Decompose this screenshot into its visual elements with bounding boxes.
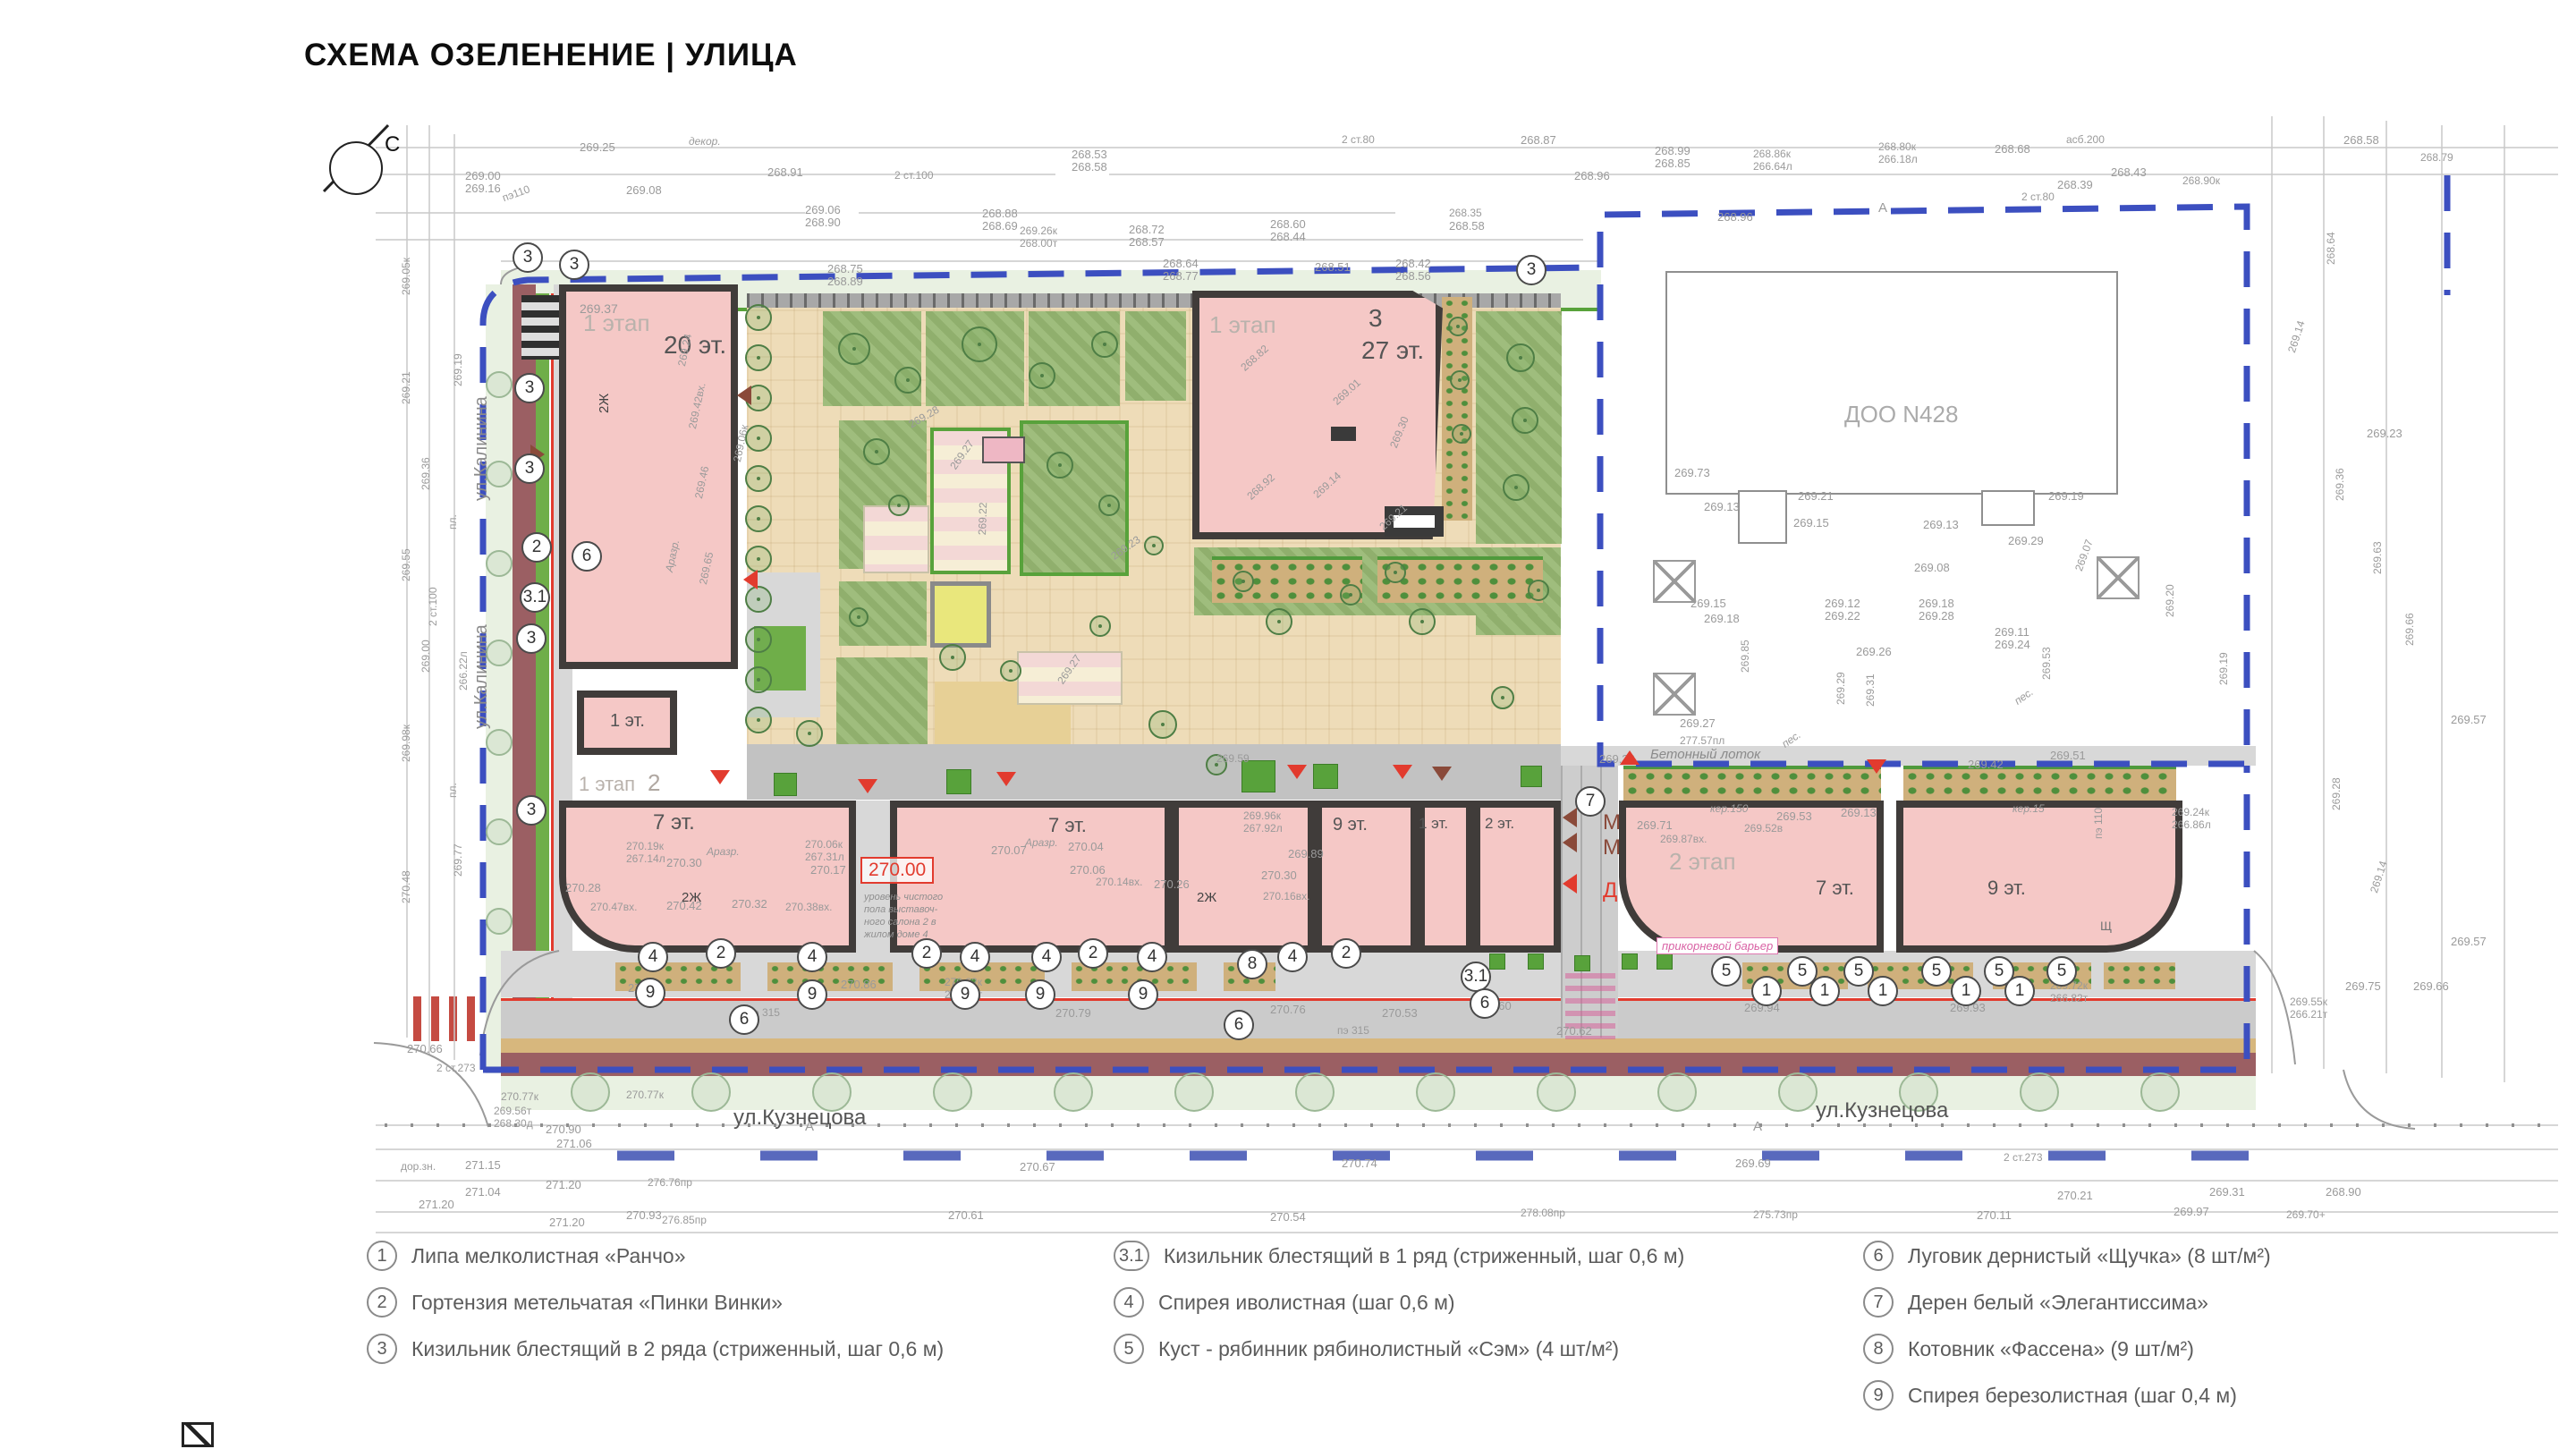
plan-text: 269.97 xyxy=(2173,1206,2209,1217)
plan-text: 269.66 xyxy=(2404,613,2415,646)
plan-text: 269.28 xyxy=(2331,777,2342,810)
plan-text: 268.60 xyxy=(1270,218,1306,230)
plan-text: Щ xyxy=(2100,919,2112,932)
plan-text: 269.51 xyxy=(2050,750,2086,761)
plan-text: 271.20 xyxy=(419,1199,454,1210)
plan-text: 270.30 xyxy=(1261,869,1297,881)
plan-text: 269.08 xyxy=(1914,562,1950,573)
plan-text: 268.75 xyxy=(827,263,863,275)
plan-text: 269.53 xyxy=(1776,810,1812,822)
plan-text: 268.44 xyxy=(1270,231,1306,242)
plan-text: 2Ж xyxy=(1197,891,1216,904)
plan-text: 269.37 xyxy=(580,302,618,315)
plan-text: 269.00 xyxy=(465,170,501,182)
plan-text: 268.43 xyxy=(2111,166,2147,178)
site-plan: 1 этап20 эт.2Ж1 эт.1 этап27 эт.2Ж7 эт.2Ж… xyxy=(0,0,2576,1449)
legend-item: 8Котовник «Фассена» (9 шт/м²) xyxy=(1863,1333,2194,1365)
entrance-arrow-icon xyxy=(1393,765,1412,779)
plan-text: Д xyxy=(1603,880,1617,902)
legend-item: 1Липа мелколистная «Ранчо» xyxy=(367,1240,686,1272)
plant-marker-4: 4 xyxy=(1277,942,1308,972)
entrance-arrow-icon xyxy=(1563,874,1577,894)
entrance-arrow-icon xyxy=(737,386,751,405)
plan-text: 27 эт. xyxy=(1361,338,1424,363)
plant-marker-1: 1 xyxy=(1951,976,1981,1006)
plan-text: 2 этап xyxy=(1669,850,1736,873)
tree-icon xyxy=(1409,608,1436,635)
entrance-arrow-icon xyxy=(710,770,730,784)
plan-text: 270.48 xyxy=(401,870,411,903)
plan-text: кер.150 xyxy=(1710,803,1748,814)
plan-text: 266.86л xyxy=(2172,819,2211,830)
plan-text: 271.20 xyxy=(549,1216,585,1228)
tree-icon xyxy=(1000,660,1021,682)
plant-marker-3: 3 xyxy=(513,242,543,273)
tree-icon xyxy=(2020,1072,2059,1112)
plan-text: 268.35 xyxy=(1449,208,1482,218)
plant-marker-4: 4 xyxy=(1031,942,1062,972)
legend-item-number: 9 xyxy=(1863,1380,1894,1411)
tree-icon xyxy=(888,495,910,516)
tree-icon xyxy=(1144,536,1164,555)
tree-icon xyxy=(486,818,513,845)
plan-text: 2 ст.273 xyxy=(436,1063,476,1073)
plan-text: 268.96 xyxy=(1574,170,1610,182)
tree-icon xyxy=(1512,407,1538,434)
plan-text: Бетонный лоток xyxy=(1650,748,1760,761)
plan-text: Аразр. xyxy=(1025,837,1058,848)
plan-text: 268.99 xyxy=(1655,145,1690,157)
plan-text: 270.53 xyxy=(1382,1007,1418,1019)
tree-icon xyxy=(962,326,997,362)
plan-text: 270.74 xyxy=(1342,1157,1377,1169)
plan-text: 270.93 xyxy=(626,1209,662,1221)
plan-text: 269.23 xyxy=(2367,428,2402,439)
plan-text: 270.67 xyxy=(1020,1161,1055,1173)
plan-text: 268.58 xyxy=(1072,161,1107,173)
plan-text: кер.15 xyxy=(2012,803,2045,814)
plan-text: 268.51 xyxy=(1315,261,1351,273)
plan-text: 276.76пр xyxy=(648,1177,692,1188)
root-barrier-note: прикорневой барьер xyxy=(1657,937,1778,954)
plant-marker-9: 9 xyxy=(1128,979,1158,1010)
plan-text: 20 эт. xyxy=(664,333,726,358)
plan-text: 270.17 xyxy=(810,864,846,876)
plan-text: 269.52в xyxy=(1744,823,1783,834)
plan-text: 270.42 xyxy=(666,900,702,911)
plant-marker-4: 4 xyxy=(797,942,827,972)
plan-text: М xyxy=(1603,812,1621,834)
legend-item: 6Луговик дернистый «Щучка» (8 шт/м²) xyxy=(1863,1240,2271,1272)
plant-marker-3: 3 xyxy=(514,373,545,403)
plant-marker-7: 7 xyxy=(1575,786,1606,817)
plan-text: 270.32 xyxy=(732,898,767,910)
plan-text: 2 ст.100 xyxy=(894,170,934,181)
plan-text: 271.20 xyxy=(546,1179,581,1191)
plant-marker-9: 9 xyxy=(1025,979,1055,1010)
plant-marker-3: 3 xyxy=(1516,255,1546,285)
plan-text: 266.18л xyxy=(1878,154,1918,165)
plant-marker-4: 4 xyxy=(960,942,990,972)
tree-icon xyxy=(1054,1072,1093,1112)
plan-text: А xyxy=(1753,1120,1762,1133)
plan-text: 3 xyxy=(1368,306,1383,331)
plan-text: 268.53 xyxy=(1072,148,1107,160)
legend-item: 2Гортензия метельчатая «Пинки Винки» xyxy=(367,1286,783,1318)
plan-text: 7 эт. xyxy=(653,812,695,834)
legend-item: 3.1Кизильник блестящий в 1 ряд (стриженн… xyxy=(1114,1240,1684,1272)
plan-text: 1 этап xyxy=(579,775,635,794)
plan-text: 269.06 xyxy=(805,204,841,216)
tree-icon xyxy=(1537,1072,1576,1112)
plan-text: 269.00 xyxy=(420,640,431,673)
plan-text: пола выставоч- xyxy=(864,905,937,915)
tree-icon xyxy=(745,344,772,371)
tree-icon xyxy=(1233,571,1254,592)
legend-item: 4Спирея иволистная (шаг 0,6 м) xyxy=(1114,1286,1455,1318)
plan-text: 1 эт. xyxy=(1419,816,1448,831)
plan-text: 269.24к xyxy=(2172,807,2209,818)
plan-text: 269.15 xyxy=(1690,597,1726,609)
plan-text: 269.25 xyxy=(580,141,615,153)
plan-text: 269.57 xyxy=(2451,714,2487,725)
plan-text: 269.19 xyxy=(453,353,463,386)
plan-surface xyxy=(1981,490,2035,526)
plan-text: 269.53 xyxy=(2041,647,2052,680)
plant-marker-6: 6 xyxy=(572,541,602,572)
plan-text: ул.Калинина xyxy=(472,624,490,729)
plan-text: А xyxy=(805,1120,814,1133)
plan-text: 7 эт. xyxy=(1816,878,1854,898)
plan-surface xyxy=(946,769,971,794)
plan-text: 269.69 xyxy=(1735,1157,1771,1169)
plan-text: асб.200 xyxy=(2066,134,2105,145)
plan-text: 269.29 xyxy=(2008,535,2044,547)
plan-surface xyxy=(1528,953,1544,970)
tree-icon xyxy=(838,333,870,365)
tree-icon xyxy=(939,644,966,671)
legend-item-number: 5 xyxy=(1114,1334,1144,1364)
plan-text: 269.21 xyxy=(1798,490,1834,502)
plan-text: 269.89 xyxy=(1288,848,1324,860)
plan-text: 269.13 xyxy=(1704,501,1740,513)
plan-text: 269.15 xyxy=(1793,517,1829,529)
plan-surface xyxy=(1665,271,2118,495)
plan-text: 266.82т xyxy=(2050,993,2088,1004)
plant-marker-3: 3 xyxy=(516,795,547,826)
plant-marker-2: 2 xyxy=(1331,938,1361,969)
plant-marker-1: 1 xyxy=(1751,976,1782,1006)
tree-icon xyxy=(849,607,869,627)
tree-icon xyxy=(1148,710,1177,739)
plan-text: 269.27 xyxy=(1680,717,1716,729)
plan-text: 269.21 xyxy=(401,371,411,404)
plan-text: 269.73 xyxy=(1674,467,1710,479)
plan-surface xyxy=(1738,490,1787,544)
plan-text: 268.86к xyxy=(1753,148,1791,159)
tree-icon xyxy=(1098,495,1120,516)
tree-icon xyxy=(796,720,823,747)
plant-marker-9: 9 xyxy=(950,979,980,1010)
entrance-arrow-icon xyxy=(1620,750,1640,765)
entrance-arrow-icon xyxy=(743,570,758,589)
tree-icon xyxy=(1174,1072,1214,1112)
plan-text: 269.22 xyxy=(977,502,988,535)
plan-text: 268.77 xyxy=(1163,270,1199,282)
plan-text: 269.77 xyxy=(453,843,463,877)
legend-item-label: Дерен белый «Элегантиссима» xyxy=(1908,1291,2208,1315)
plant-marker-9: 9 xyxy=(635,978,665,1008)
plan-text: 270.06 xyxy=(1070,864,1106,876)
tree-icon xyxy=(1385,562,1406,583)
plan-text: А xyxy=(1878,201,1887,215)
plan-text: 267.92л xyxy=(1243,823,1283,834)
plant-marker-3: 3 xyxy=(516,623,547,654)
tree-icon xyxy=(745,666,772,693)
plan-text: 269.16 xyxy=(465,182,501,194)
tree-icon xyxy=(1089,615,1111,637)
legend-item-label: Кизильник блестящий в 2 ряда (стриженный… xyxy=(411,1337,944,1361)
tree-icon xyxy=(1450,370,1470,390)
plan-text: 268.30д xyxy=(494,1118,533,1129)
plan-text: 9 эт. xyxy=(1333,816,1368,834)
plan-text: 268.39 xyxy=(2057,179,2093,191)
plan-surface xyxy=(1574,955,1590,971)
plan-text: 2 эт. xyxy=(1485,816,1514,831)
tree-icon xyxy=(1452,424,1471,444)
plan-text: 269.18 xyxy=(1919,597,1954,609)
tree-icon xyxy=(863,438,890,465)
plan-text: 268.90 xyxy=(2326,1186,2361,1198)
tree-icon xyxy=(1266,608,1292,635)
plan-text: 268.64 xyxy=(2326,232,2336,265)
plan-text: 271.06 xyxy=(556,1138,592,1149)
plan-text: 270.90 xyxy=(546,1123,581,1135)
plan-text: 269.29 xyxy=(1835,672,1846,705)
plan-text: 270.21 xyxy=(2057,1190,2093,1201)
plan-text: 269.70+ xyxy=(2286,1209,2326,1220)
legend-item-number: 2 xyxy=(367,1287,397,1318)
plan-text: ДОО N428 xyxy=(1844,402,1958,426)
plan-text: 269.56т xyxy=(494,1106,531,1116)
tree-icon xyxy=(745,707,772,733)
plan-text: 275.73пр xyxy=(1753,1209,1798,1220)
legend-item-label: Спирея иволистная (шаг 0,6 м) xyxy=(1158,1291,1455,1315)
plant-marker-3.1: 3.1 xyxy=(520,582,550,613)
legend-item-label: Котовник «Фассена» (9 шт/м²) xyxy=(1908,1337,2194,1361)
plan-surface xyxy=(774,773,797,796)
plan-text: 269.96к xyxy=(1243,810,1281,821)
plan-text: 266.21т xyxy=(2290,1009,2327,1020)
plan-text: 270.76 xyxy=(1270,1004,1306,1015)
plan-text: 268.88 xyxy=(982,208,1018,219)
plan-text: 270.62 xyxy=(1556,1025,1592,1037)
legend-item-label: Куст - рябинник рябинолистный «Сэм» (4 ш… xyxy=(1158,1337,1619,1361)
plan-text: 269.31 xyxy=(2209,1186,2245,1198)
plan-text: 268.79 xyxy=(2420,152,2453,163)
plan-surface xyxy=(1657,953,1673,970)
tree-icon xyxy=(486,729,513,756)
plan-text: пэ 110 xyxy=(2093,808,2104,839)
tree-icon xyxy=(1029,362,1055,389)
plan-text: 266.22л xyxy=(458,651,469,691)
plan-text: 269.26к xyxy=(1020,225,1057,236)
plan-text: 269.24 xyxy=(1995,639,2030,650)
tree-icon xyxy=(745,546,772,572)
entrance-arrow-icon xyxy=(1563,808,1577,827)
floor-level-note: 270.00 xyxy=(860,857,934,884)
plan-text: 269.57 xyxy=(2451,936,2487,947)
plan-text: 269.13 xyxy=(1923,519,1959,530)
plan-text: 2 ст.80 xyxy=(1342,134,1375,145)
plant-marker-9: 9 xyxy=(797,979,827,1010)
plan-text: 2 xyxy=(648,771,660,794)
tree-icon xyxy=(1528,580,1549,601)
plan-text: 269.36 xyxy=(2334,468,2345,501)
legend-item-number: 7 xyxy=(1863,1287,1894,1318)
plant-marker-5: 5 xyxy=(2046,956,2077,987)
legend-item-number: 1 xyxy=(367,1241,397,1271)
plan-text: 268.89 xyxy=(827,275,863,287)
plant-marker-4: 4 xyxy=(638,942,668,972)
plan-text: 270.30 xyxy=(666,857,702,869)
plan-text: 2Ж xyxy=(597,394,611,413)
entrance-arrow-icon xyxy=(996,772,1016,786)
plan-surface xyxy=(1489,953,1505,970)
plan-text: М xyxy=(1603,837,1621,859)
plan-text: 1 этап xyxy=(1209,313,1276,336)
plan-text: 268.68 xyxy=(1995,143,2030,155)
plan-text: 270.04 xyxy=(1068,841,1104,852)
legend-item-number: 6 xyxy=(1863,1241,1894,1271)
tree-icon xyxy=(2140,1072,2180,1112)
plan-surface xyxy=(1241,760,1275,792)
plan-text: 271.04 xyxy=(465,1186,501,1198)
tree-icon xyxy=(1503,474,1529,501)
entrance-arrow-icon xyxy=(1867,759,1886,774)
plant-marker-1: 1 xyxy=(2004,976,2035,1006)
plant-marker-5: 5 xyxy=(1711,956,1741,987)
plant-marker-6: 6 xyxy=(729,1004,759,1035)
plan-text: 267.14л xyxy=(626,853,665,864)
plan-text: 268.42 xyxy=(1395,258,1431,269)
plan-text: 269.11 xyxy=(1995,626,2029,638)
plant-marker-4: 4 xyxy=(1137,942,1167,972)
plan-text: 268.87 xyxy=(1521,134,1556,146)
plan-text: ул.Кузнецова xyxy=(1816,1100,1948,1122)
plan-text: 269.05к xyxy=(401,258,411,295)
plant-marker-6: 6 xyxy=(1470,988,1500,1019)
plan-text: 271.15 xyxy=(465,1159,501,1171)
plan-text: 269.31 xyxy=(1865,674,1876,707)
entrance-arrow-icon xyxy=(1287,765,1307,779)
tree-icon xyxy=(1416,1072,1455,1112)
plan-text: 270.06к xyxy=(805,839,843,850)
plant-marker-3: 3 xyxy=(559,250,589,280)
plan-text: 269.12 xyxy=(1825,597,1860,609)
plant-marker-1: 1 xyxy=(1809,976,1840,1006)
legend-item-label: Липа мелколистная «Ранчо» xyxy=(411,1244,686,1268)
legend: 1Липа мелколистная «Ранчо»2Гортензия мет… xyxy=(0,1240,2576,1428)
plan-text: 270.14вх. xyxy=(1096,877,1142,887)
plan-text: 270.77к xyxy=(626,1089,664,1100)
plan-text: 2 ст.273 xyxy=(2004,1152,2043,1163)
entrance-arrow-icon xyxy=(858,779,877,793)
plan-text: 270.26 xyxy=(1154,878,1190,890)
plan-text: 268.90 xyxy=(805,216,841,228)
plan-text: 268.72 xyxy=(1129,224,1165,235)
plan-text: 268.85 xyxy=(1655,157,1690,169)
tree-icon xyxy=(1091,331,1118,358)
legend-item-number: 4 xyxy=(1114,1287,1144,1318)
plant-marker-2: 2 xyxy=(521,532,552,563)
tree-icon xyxy=(1340,584,1361,606)
plan-text: 269.85 xyxy=(1740,640,1750,673)
legend-item-label: Гортензия метельчатая «Пинки Винки» xyxy=(411,1291,783,1315)
tree-icon xyxy=(691,1072,731,1112)
plan-text: пл. xyxy=(447,783,458,798)
plan-text: 270.28 xyxy=(565,882,601,894)
tree-icon xyxy=(1778,1072,1818,1112)
plan-text: 2 ст.100 xyxy=(428,587,438,626)
legend-item: 3Кизильник блестящий в 2 ряда (стриженны… xyxy=(367,1333,944,1365)
plan-text: 269.87вх. xyxy=(1660,834,1707,844)
plan-text: 269.28 xyxy=(1919,610,1954,622)
plan-text: 268.64 xyxy=(1163,258,1199,269)
plan-text: 276.85пр xyxy=(662,1215,707,1225)
plan-text: 268.58 xyxy=(2343,134,2379,146)
plan-text: ул.Кузнецова xyxy=(733,1107,866,1129)
legend-item: 7Дерен белый «Элегантиссима» xyxy=(1863,1286,2208,1318)
plan-text: 268.80к xyxy=(1878,141,1916,152)
tree-icon xyxy=(1491,686,1514,709)
plan-text: декор. xyxy=(689,136,721,147)
tree-icon xyxy=(745,626,772,653)
tree-icon xyxy=(486,371,513,398)
plan-text: 270.38вх. xyxy=(785,902,832,912)
plant-marker-1: 1 xyxy=(1868,976,1898,1006)
tree-icon xyxy=(894,367,921,394)
plan-text: 1 эт. xyxy=(610,712,645,730)
plan-text: 270.86 xyxy=(841,979,877,990)
building xyxy=(559,801,856,953)
plan-text: ного салона 2 в xyxy=(864,918,936,928)
plan-text: 268.00т xyxy=(1020,238,1057,249)
plan-text: 270.66 xyxy=(407,1043,443,1055)
legend-item-number: 3 xyxy=(367,1334,397,1364)
plan-text: 269.13 xyxy=(1841,807,1877,818)
plan-text: 270.07 xyxy=(991,844,1027,856)
plan-text: 278.08пр xyxy=(1521,1207,1565,1218)
plant-marker-6: 6 xyxy=(1224,1010,1254,1040)
plan-text: дор.зн. xyxy=(401,1161,436,1172)
plan-text: ул.Калинина xyxy=(472,396,490,501)
landscaping-scheme-sheet: СХЕМА ОЗЕЛЕНЕНИЕ | УЛИЦА 1 этап20 эт.2Ж1… xyxy=(0,0,2576,1449)
plan-text: 2 ст.80 xyxy=(2021,191,2055,202)
legend-item-number: 8 xyxy=(1863,1334,1894,1364)
legend-item-number: 3.1 xyxy=(1114,1241,1149,1271)
tree-icon xyxy=(486,908,513,935)
plan-text: 268.57 xyxy=(1129,236,1165,248)
plan-text: 269.08 xyxy=(626,184,662,196)
plan-text: 269.66 xyxy=(2413,980,2449,992)
plan-text: 269.42 xyxy=(1968,758,2004,770)
plan-text: 270.54 xyxy=(1270,1211,1306,1223)
plant-marker-3: 3 xyxy=(514,453,545,484)
plan-text: 268.69 xyxy=(982,220,1018,232)
tree-icon xyxy=(1657,1072,1697,1112)
plan-text: 269.36 xyxy=(420,457,431,490)
